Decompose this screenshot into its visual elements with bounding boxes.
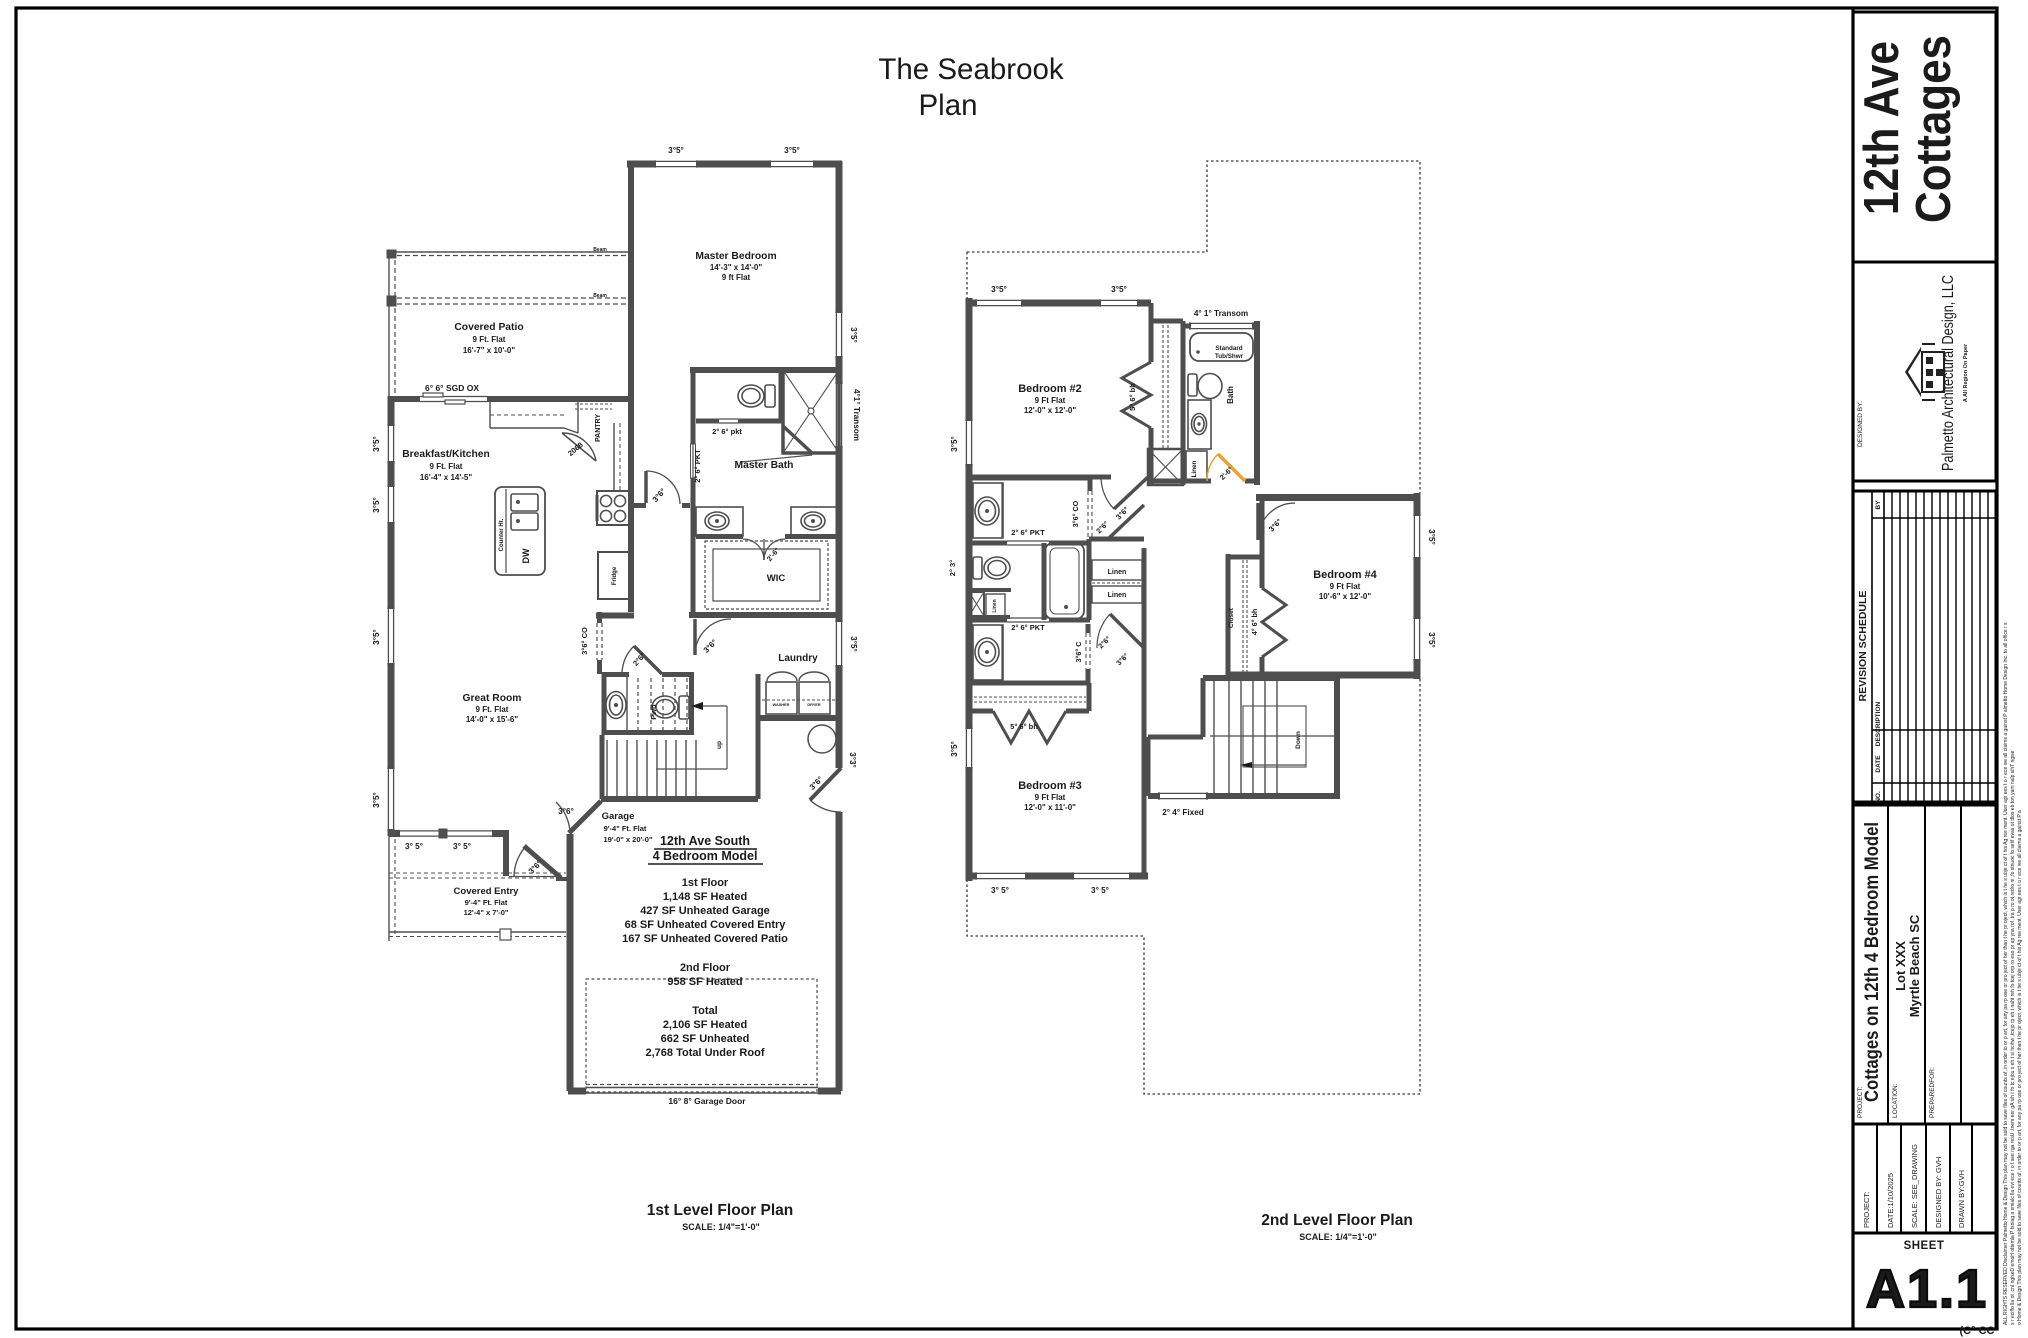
svg-text:4° 6° bh: 4° 6° bh <box>1250 609 1259 636</box>
svg-text:Bedroom #2: Bedroom #2 <box>1018 383 1082 395</box>
svg-text:SCALE: 1/4"=1'-0": SCALE: 1/4"=1'-0" <box>682 1222 759 1232</box>
svg-text:4 Bedroom Model: 4 Bedroom Model <box>653 849 758 863</box>
svg-text:Pwd: Pwd <box>649 704 658 720</box>
svg-text:A All Region On Paper: A All Region On Paper <box>1963 343 1969 402</box>
svg-text:Bath: Bath <box>1226 386 1235 404</box>
svg-text:Plan: Plan <box>918 89 977 122</box>
svg-text:3°5°: 3°5° <box>1427 632 1436 648</box>
svg-text:3°5°: 3°5° <box>950 741 959 757</box>
svg-text:12'-0" x 12'-0": 12'-0" x 12'-0" <box>1024 406 1077 415</box>
svg-text:A1.1: A1.1 <box>1866 1259 1988 1319</box>
svg-text:9 Ft. Flat: 9 Ft. Flat <box>476 705 509 714</box>
svg-text:9 ft Flat: 9 ft Flat <box>722 273 751 282</box>
svg-text:9'-4" Ft. Flat: 9'-4" Ft. Flat <box>604 824 647 833</box>
svg-text:Linen: Linen <box>1108 569 1127 576</box>
svg-text:427 SF Unheated Garage: 427 SF Unheated Garage <box>640 905 770 917</box>
svg-text:2° 6° pkt: 2° 6° pkt <box>712 427 742 436</box>
svg-text:Breakfast/Kitchen: Breakfast/Kitchen <box>402 449 490 460</box>
svg-text:6° 6° SGD OX: 6° 6° SGD OX <box>425 383 479 393</box>
svg-text:PROJECT:: PROJECT: <box>1862 1192 1871 1228</box>
svg-text:9 Ft Flat: 9 Ft Flat <box>1035 396 1066 405</box>
svg-text:3° 5°: 3° 5° <box>453 842 471 851</box>
svg-text:Fridge: Fridge <box>612 566 618 585</box>
svg-text:DW: DW <box>521 548 531 563</box>
svg-text:3°6° C: 3°6° C <box>1074 642 1083 663</box>
svg-text:1st Level Floor Plan: 1st Level Floor Plan <box>647 1202 793 1219</box>
svg-text:Cottages: Cottages <box>1907 35 1961 223</box>
svg-text:12'-4" x 7'-0": 12'-4" x 7'-0" <box>464 908 509 917</box>
svg-text:3°5°: 3°5° <box>1427 529 1436 545</box>
svg-text:Master Bedroom: Master Bedroom <box>695 251 776 262</box>
svg-text:up: up <box>716 741 723 749</box>
svg-text:DESIGNED BY: GVH: DESIGNED BY: GVH <box>1934 1157 1943 1228</box>
svg-text:3°5°: 3°5° <box>372 629 381 645</box>
svg-text:DESIGNED BY:: DESIGNED BY: <box>1857 401 1864 447</box>
svg-text:REVISION SCHEDULE: REVISION SCHEDULE <box>1857 591 1869 702</box>
svg-text:3°5°: 3°5° <box>1111 285 1127 294</box>
svg-text:16'-4" x 14'-5": 16'-4" x 14'-5" <box>420 473 473 482</box>
svg-text:2,768 Total Under Roof: 2,768 Total Under Roof <box>646 1047 765 1059</box>
svg-text:DATE: DATE <box>1875 755 1882 773</box>
svg-text:Beam: Beam <box>593 247 607 253</box>
svg-text:Bedroom #4: Bedroom #4 <box>1313 569 1377 581</box>
svg-text:3° 5°: 3° 5° <box>405 842 423 851</box>
svg-text:662 SF Unheated: 662 SF Unheated <box>661 1033 750 1045</box>
svg-text:NO.: NO. <box>1875 791 1882 803</box>
svg-text:16'-7" x 10'-0": 16'-7" x 10'-0" <box>463 346 516 355</box>
svg-text:3°6° CO: 3°6° CO <box>1071 500 1080 527</box>
svg-text:9 Ft Flat: 9 Ft Flat <box>1330 582 1361 591</box>
svg-text:o Home & Design This plan may: o Home & Design This plan may not be sol… <box>2017 810 2023 1325</box>
svg-text:2° 6° PKT: 2° 6° PKT <box>1011 528 1045 537</box>
svg-text:14'-3" x 14'-0": 14'-3" x 14'-0" <box>710 263 763 272</box>
svg-text:The Seabrook: The Seabrook <box>878 53 1064 86</box>
svg-text:Palmetto Architectural Design,: Palmetto Architectural Design, LLC <box>1940 275 1957 471</box>
svg-text:PREPAREDFOR:: PREPAREDFOR: <box>1929 1067 1936 1118</box>
svg-text:Down: Down <box>1295 731 1302 749</box>
svg-text:ALL RIGHTS RESERVED Disclaime: ALL RIGHTS RESERVED Disclaimer Palmetto … <box>2003 622 2009 1325</box>
svg-text:Tub/Shwr: Tub/Shwr <box>1215 353 1244 360</box>
svg-text:10'-6" x 12'-0": 10'-6" x 12'-0" <box>1319 592 1372 601</box>
svg-text:3°5°: 3°5° <box>372 497 381 513</box>
svg-text:3°5°: 3°5° <box>784 146 800 155</box>
svg-text:3°5°: 3°5° <box>372 436 381 452</box>
svg-text:2° 4° Fixed: 2° 4° Fixed <box>1162 808 1204 817</box>
svg-text:DESCRIPTION: DESCRIPTION <box>1875 701 1882 746</box>
svg-text:Beam: Beam <box>593 293 607 299</box>
svg-text:SCALE: 1/4"=1'-0": SCALE: 1/4"=1'-0" <box>1299 1232 1376 1242</box>
svg-text:3° 5°: 3° 5° <box>991 886 1009 895</box>
svg-text:SHEET: SHEET <box>1904 1240 1945 1252</box>
svg-text:16° 8° Garage Door: 16° 8° Garage Door <box>668 1096 746 1106</box>
svg-text:3° 5°: 3° 5° <box>1091 886 1109 895</box>
svg-text:3°6°: 3°6° <box>558 807 574 816</box>
svg-text:Laundry: Laundry <box>778 653 818 664</box>
svg-text:5° 6° bh: 5° 6° bh <box>1010 722 1038 731</box>
svg-text:DRAWN BY:GVH: DRAWN BY:GVH <box>1957 1170 1966 1228</box>
svg-text:Covered Entry: Covered Entry <box>454 886 520 897</box>
svg-text:12'-0" x 11'-0": 12'-0" x 11'-0" <box>1024 803 1076 812</box>
svg-text:5° 6° bh: 5° 6° bh <box>1128 383 1137 411</box>
svg-text:DRYER: DRYER <box>807 703 820 707</box>
svg-text:Master Bath: Master Bath <box>735 460 794 471</box>
svg-text:3°5°: 3°5° <box>950 436 959 452</box>
svg-text:2° 3°: 2° 3° <box>948 560 957 576</box>
svg-text:BY: BY <box>1875 500 1882 510</box>
svg-text:19'-0" x 20'-0": 19'-0" x 20'-0" <box>603 835 652 844</box>
svg-text:3°5°: 3°5° <box>849 636 858 652</box>
svg-text:3°5°: 3°5° <box>849 327 858 343</box>
svg-text:958 SF Heated: 958 SF Heated <box>667 976 742 988</box>
svg-text:12th Ave South: 12th Ave South <box>660 834 750 848</box>
svg-text:68 SF Unheated Covered Entry: 68 SF Unheated Covered Entry <box>625 919 787 931</box>
svg-text:Standard: Standard <box>1215 345 1242 352</box>
svg-text:Covered Patio: Covered Patio <box>454 322 523 333</box>
svg-text:12th Ave: 12th Ave <box>1855 41 1909 215</box>
svg-text:Myrtle Beach SC: Myrtle Beach SC <box>1907 914 1922 1017</box>
svg-text:Linen: Linen <box>1191 460 1198 477</box>
svg-text:2° 6° PKT: 2° 6° PKT <box>1011 623 1045 632</box>
svg-text:2,106 SF Heated: 2,106 SF Heated <box>663 1019 747 1031</box>
svg-text:9 Ft. Flat: 9 Ft. Flat <box>430 462 463 471</box>
svg-text:WASHER: WASHER <box>773 703 790 707</box>
svg-text:3°5°: 3°5° <box>991 285 1007 294</box>
svg-text:Bedroom #3: Bedroom #3 <box>1018 780 1082 792</box>
svg-text:PANTRY: PANTRY <box>595 414 602 442</box>
svg-text:4°1° Transom: 4°1° Transom <box>852 389 861 441</box>
svg-text:3°5°: 3°5° <box>372 792 381 808</box>
svg-text:1st Floor: 1st Floor <box>682 877 729 889</box>
svg-text:3°3°: 3°3° <box>848 752 857 768</box>
svg-text:s r eciffo lla ot .cnI ngise: s r eciffo lla ot .cnI ngiseD emoH ottem… <box>2010 750 2016 1325</box>
svg-text:1,148 SF Heated: 1,148 SF Heated <box>663 891 747 903</box>
svg-text:DATE:1/10/2025: DATE:1/10/2025 <box>1886 1173 1895 1228</box>
svg-text:3°5°: 3°5° <box>668 146 684 155</box>
svg-text:9'-4" Ft. Flat: 9'-4" Ft. Flat <box>465 898 508 907</box>
svg-text:WIC: WIC <box>767 573 786 584</box>
svg-text:2° 6° PKT: 2° 6° PKT <box>693 449 702 483</box>
svg-text:Great Room: Great Room <box>463 693 522 704</box>
svg-text:14'-0" x 15'-6": 14'-0" x 15'-6" <box>466 715 519 724</box>
svg-text:2nd Floor: 2nd Floor <box>680 962 731 974</box>
svg-text:3°6° CO: 3°6° CO <box>580 627 589 655</box>
svg-text:9 Ft Flat: 9 Ft Flat <box>1035 793 1066 802</box>
svg-text:167 SF Unheated Covered Patio: 167 SF Unheated Covered Patio <box>622 933 788 945</box>
svg-text:4° 1° Transom: 4° 1° Transom <box>1194 309 1248 318</box>
svg-text:Lot XXX: Lot XXX <box>1893 941 1908 991</box>
svg-text:Total: Total <box>692 1005 717 1017</box>
svg-text:2nd Level Floor Plan: 2nd Level Floor Plan <box>1261 1212 1413 1229</box>
svg-text:(C° CC: (C° CC <box>1960 1325 1995 1337</box>
svg-text:Counter Ht.: Counter Ht. <box>499 518 505 551</box>
svg-text:9 Ft. Flat: 9 Ft. Flat <box>473 335 506 344</box>
svg-text:Linen: Linen <box>992 599 998 612</box>
svg-text:Garage: Garage <box>602 811 635 822</box>
svg-text:LOCATION:: LOCATION: <box>1892 1083 1899 1118</box>
svg-text:Linen: Linen <box>1108 592 1127 599</box>
svg-text:Cottages on 12th 4 Bedroom Mod: Cottages on 12th 4 Bedroom Model <box>1861 822 1883 1102</box>
svg-text:Closet: Closet <box>1228 607 1235 628</box>
svg-text:SCALE: SEE_DRAWING: SCALE: SEE_DRAWING <box>1910 1144 1919 1228</box>
